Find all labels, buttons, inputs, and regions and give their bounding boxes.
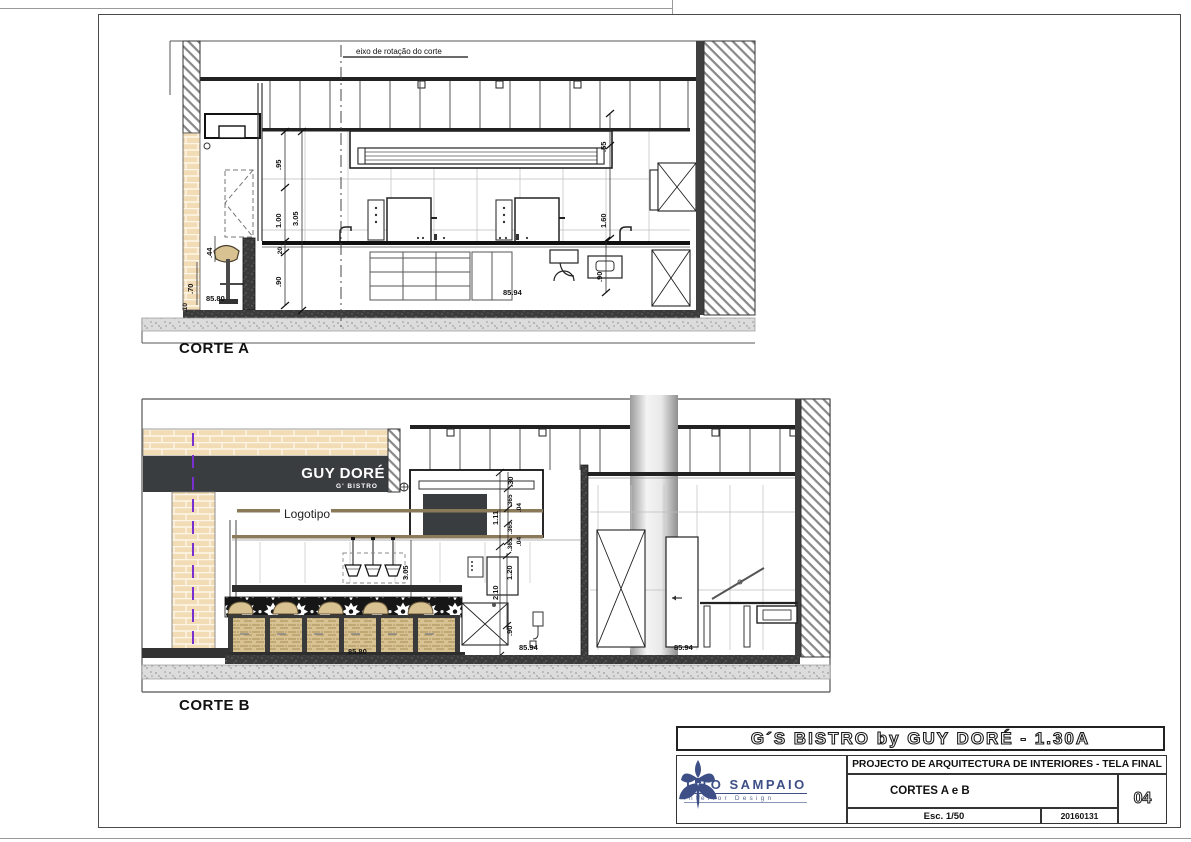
logo-cell: TITO SAMPAIO Interior Design bbox=[676, 755, 847, 824]
corte-a-label: CORTE A bbox=[179, 340, 249, 357]
svg-text:.55: .55 bbox=[599, 142, 608, 152]
svg-text:.20: .20 bbox=[277, 247, 284, 256]
svg-text:3.05: 3.05 bbox=[291, 211, 300, 226]
svg-text:.365: .365 bbox=[507, 521, 514, 534]
date-cell: 20160131 bbox=[1041, 808, 1118, 824]
sheet-number-cell: 04 bbox=[1118, 774, 1167, 824]
level-mark: 85.94 bbox=[503, 288, 523, 297]
corte-a-section: eixo de rotação do corte .95 1.00 3.05 .… bbox=[142, 41, 755, 343]
svg-text:1.60: 1.60 bbox=[599, 213, 608, 228]
svg-text:.04: .04 bbox=[516, 537, 523, 546]
right-fixtures bbox=[597, 530, 798, 647]
corte-b-label: CORTE B bbox=[179, 697, 250, 714]
svg-text:1.00: 1.00 bbox=[274, 213, 283, 228]
corte-a-floor bbox=[142, 310, 755, 331]
corte-a-ceiling-structure bbox=[200, 77, 700, 132]
svg-text:.90: .90 bbox=[274, 277, 283, 287]
faucet-icon bbox=[340, 227, 351, 241]
svg-text:.44: .44 bbox=[205, 247, 214, 258]
bar-counter bbox=[225, 585, 465, 656]
title-banner: G´S BISTRO by GUY DORÉ - 1.30A bbox=[676, 726, 1165, 751]
door-swing-dashed bbox=[225, 170, 253, 237]
corte-b-right-wall bbox=[795, 399, 830, 657]
svg-text:.90: .90 bbox=[595, 272, 604, 282]
svg-text:.10: .10 bbox=[182, 303, 189, 312]
storefront-facade: GUY DORÉ G' BISTRO bbox=[143, 429, 408, 492]
level-mark: 85.80 bbox=[206, 294, 225, 303]
scale-cell: Esc. 1/50 bbox=[847, 808, 1041, 824]
level-mark: 85.94 bbox=[674, 643, 694, 652]
svg-text:1.11: 1.11 bbox=[491, 511, 500, 525]
sign-subtitle: G' BISTRO bbox=[336, 483, 378, 490]
under-counter-shelving bbox=[370, 252, 512, 300]
level-mark: 85.80 bbox=[348, 647, 367, 656]
menu-board bbox=[423, 494, 487, 535]
janitor-sink bbox=[550, 250, 578, 281]
level-mark: 85.94 bbox=[519, 643, 539, 652]
axis-note: eixo de rotação do corte bbox=[356, 47, 442, 56]
svg-text:.70: .70 bbox=[186, 284, 195, 294]
svg-text:.04: .04 bbox=[516, 503, 523, 512]
facade-pier bbox=[388, 429, 400, 492]
svg-text:.365: .365 bbox=[507, 538, 514, 551]
upper-right-cabinet bbox=[650, 163, 696, 211]
logotipo-callout: Logotipo bbox=[284, 507, 330, 521]
drawing-sheet: eixo de rotação do corte .95 1.00 3.05 .… bbox=[0, 0, 1191, 842]
svg-text:.95: .95 bbox=[274, 160, 283, 170]
dishwasher-box bbox=[652, 250, 690, 306]
drawing-title-cell: CORTES A e B bbox=[847, 774, 1118, 808]
svg-text:1.20: 1.20 bbox=[505, 565, 514, 580]
corte-b-section: GUY DORÉ G' BISTRO bbox=[142, 395, 830, 692]
banner-text: G´S BISTRO by GUY DORÉ - 1.30A bbox=[751, 729, 1090, 749]
cut-wall-mid bbox=[581, 465, 588, 657]
wall-cabinet-2 bbox=[496, 198, 565, 242]
mid-cabinet bbox=[462, 557, 543, 647]
tall-door bbox=[666, 537, 698, 647]
svg-text:.90: .90 bbox=[505, 626, 514, 636]
tito-sampaio-logo-icon bbox=[677, 756, 719, 812]
svg-text:.365: .365 bbox=[507, 494, 514, 507]
corte-a-right-wall bbox=[696, 41, 755, 315]
svg-text:3.05: 3.05 bbox=[401, 565, 410, 580]
sections-drawing: eixo de rotação do corte .95 1.00 3.05 .… bbox=[0, 0, 1191, 842]
cut-wall bbox=[243, 238, 255, 310]
corte-a-left-wall bbox=[183, 41, 200, 310]
exhaust-hood bbox=[350, 131, 612, 168]
wall-cabinet-1 bbox=[368, 198, 437, 242]
svg-text:2.10: 2.10 bbox=[491, 585, 500, 600]
title-block: TITO SAMPAIO Interior Design PROJECTO DE… bbox=[676, 755, 1167, 824]
low-cabinet bbox=[588, 256, 622, 278]
sign-title: GUY DORÉ bbox=[301, 465, 385, 482]
faucet-icon bbox=[620, 227, 631, 241]
project-title-cell: PROJECTO DE ARQUITECTURA DE INTERIORES -… bbox=[847, 755, 1167, 774]
svg-text:.30: .30 bbox=[506, 477, 515, 487]
